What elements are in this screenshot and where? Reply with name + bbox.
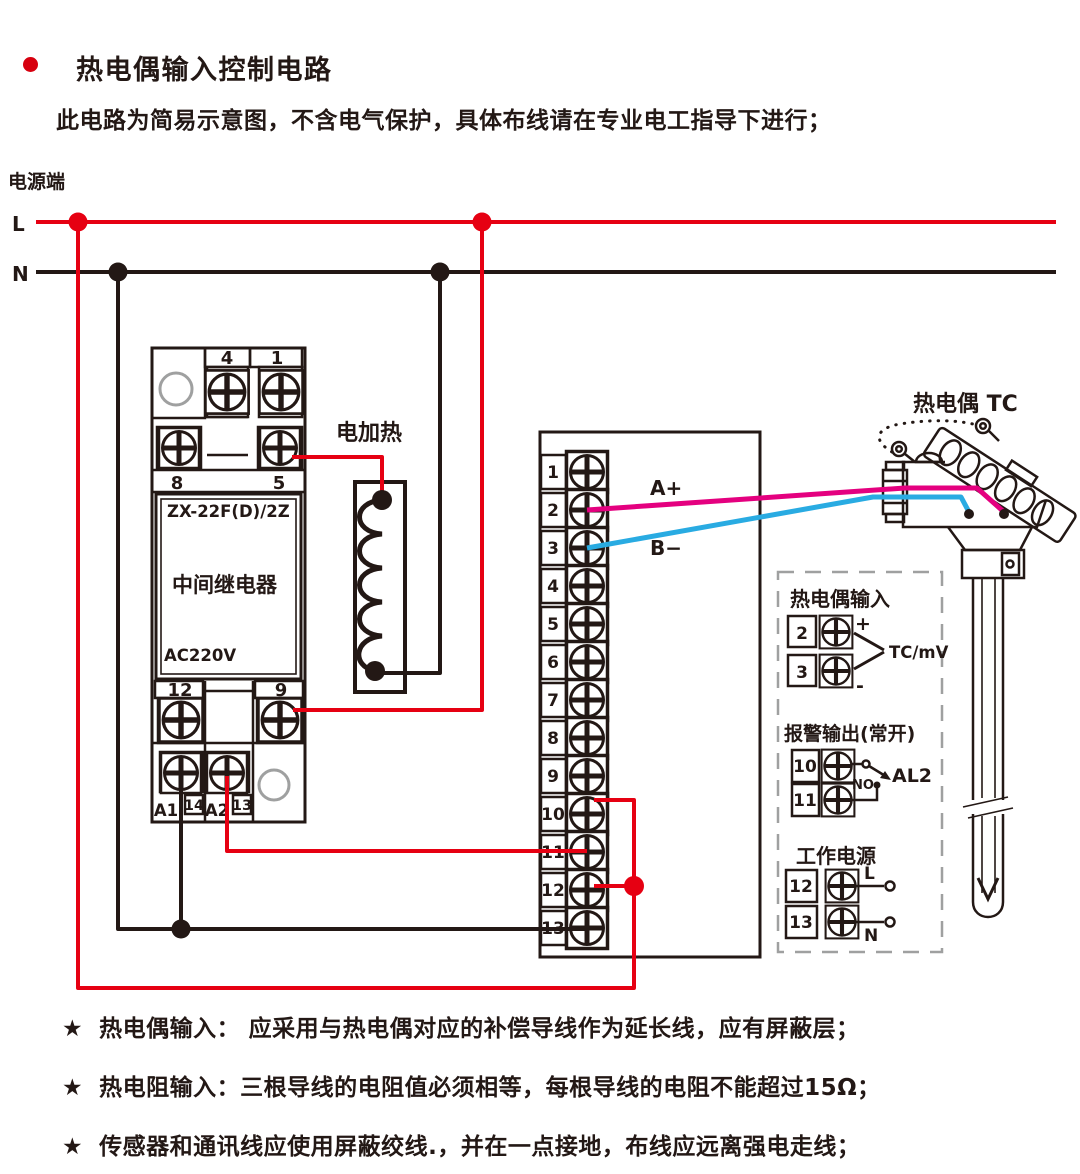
- tc-bracket: [854, 633, 884, 669]
- note-2: ★热电阻输入：三根导线的电阻值必须相等，每根导线的电阻不能超过15Ω；: [62, 1068, 881, 1102]
- supply-section: 工作电源 12 13 L N: [786, 844, 895, 946]
- svg-text:A1: A1: [154, 801, 178, 820]
- relay-model: ZX-22F(D)/2Z: [167, 502, 290, 521]
- terminal-row-4: 4: [541, 565, 608, 607]
- alarm-output-section: 报警输出(常开) 10 11 NO AL2: [784, 722, 932, 816]
- svg-text:9: 9: [547, 767, 559, 787]
- terminal-row-6: 6: [541, 641, 608, 683]
- al2-label: AL2: [892, 765, 932, 787]
- neck-funnel: [948, 527, 1032, 550]
- io-panel: 热电偶输入 2 3 + - TC/mV 报警输出(常开) 10 11: [778, 572, 949, 952]
- cap-eyelet-screws: [892, 419, 999, 462]
- terminal-row-5: 5: [541, 603, 608, 645]
- tc-input-title: 热电偶输入: [790, 587, 890, 611]
- supply-n-label: N: [864, 926, 878, 946]
- star-icon: ★: [62, 1134, 83, 1160]
- heater-coil: [359, 500, 382, 671]
- svg-text:10: 10: [793, 757, 817, 777]
- relay-name: 中间继电器: [172, 573, 278, 597]
- relay-hole: [160, 373, 192, 405]
- wire-a-plus-label: A+: [650, 476, 682, 500]
- svg-text:3: 3: [547, 539, 559, 559]
- svg-text:13: 13: [789, 913, 813, 933]
- svg-text:13: 13: [232, 798, 252, 814]
- supply-l-label: L: [864, 864, 875, 884]
- svg-text:8: 8: [547, 729, 559, 749]
- l-to-relay9: [293, 222, 482, 710]
- intermediate-relay: 4 1 8 5 ZX-22F(D)/2Z 中间继电器 AC220V 12 9 A…: [152, 348, 305, 822]
- svg-text:11: 11: [793, 791, 817, 811]
- alarm-title: 报警输出(常开): [784, 722, 915, 745]
- svg-text:1: 1: [271, 348, 284, 369]
- svg-text:5: 5: [547, 615, 559, 635]
- tc-signal-label: TC/mV: [889, 643, 949, 662]
- svg-text:2: 2: [547, 501, 559, 521]
- probe-tube: [963, 578, 1013, 917]
- svg-text:1: 1: [547, 463, 559, 483]
- line-n-label: N: [12, 262, 29, 286]
- heater-label: 电加热: [336, 420, 402, 446]
- svg-text:5: 5: [273, 473, 286, 494]
- star-icon: ★: [62, 1075, 83, 1101]
- terminal-row-8: 8: [541, 717, 608, 759]
- svg-text:14: 14: [184, 798, 204, 814]
- line-l-label: L: [12, 212, 25, 236]
- svg-text:12: 12: [541, 881, 565, 901]
- circuit-diagram: L N 1 2 3 4 5 6 7 8 9 10 11 12 13 A+ B−: [0, 0, 1080, 1174]
- svg-text:4: 4: [221, 348, 234, 369]
- relay-hole-2: [259, 770, 289, 800]
- wire-b-minus-label: B−: [650, 536, 682, 560]
- ribbed-cap: [923, 418, 1080, 543]
- minus-label: -: [856, 675, 864, 697]
- wiring-diagram-page: 热电偶输入控制电路 此电路为简易示意图，不含电气保护，具体布线请在专业电工指导下…: [0, 0, 1080, 1174]
- svg-text:7: 7: [547, 691, 559, 711]
- probe-collar: [962, 550, 1024, 578]
- star-icon: ★: [62, 1016, 83, 1042]
- heater-return: [377, 272, 440, 673]
- terminal-row-7: 7: [541, 679, 608, 721]
- svg-text:3: 3: [796, 663, 808, 683]
- note-1: ★热电偶输入： 应采用与热电偶对应的补偿导线作为延长线，应有屏蔽层；: [62, 1009, 881, 1043]
- plus-label: +: [855, 613, 871, 635]
- svg-text:4: 4: [547, 577, 559, 597]
- terminal-strip: 1 2 3 4 5 6 7 8 9 10 11 12 13: [541, 451, 608, 949]
- footnotes: ★热电偶输入： 应采用与热电偶对应的补偿导线作为延长线，应有屏蔽层； ★热电阻输…: [62, 1009, 881, 1161]
- svg-text:12: 12: [789, 877, 813, 897]
- terminal-row-12: 12: [541, 869, 608, 911]
- svg-text:6: 6: [547, 653, 559, 673]
- thermocouple-label: 热电偶 TC: [913, 391, 1018, 417]
- n-to-terminal13: [118, 272, 587, 929]
- a2-to-terminal11: [227, 776, 587, 851]
- no-label: NO: [852, 778, 874, 793]
- terminal-row-1: 1: [541, 451, 608, 493]
- svg-text:10: 10: [541, 805, 565, 825]
- tc-input-section: 热电偶输入 2 3 + - TC/mV: [788, 587, 949, 697]
- note-3: ★传感器和通讯线应使用屏蔽绞线.，并在一点接地，布线应远离强电走线；: [62, 1127, 881, 1161]
- electric-heater: 电加热: [336, 420, 405, 692]
- svg-text:8: 8: [171, 473, 184, 494]
- svg-text:2: 2: [796, 624, 808, 644]
- terminal-row-9: 9: [541, 755, 608, 797]
- relay-voltage: AC220V: [164, 646, 236, 665]
